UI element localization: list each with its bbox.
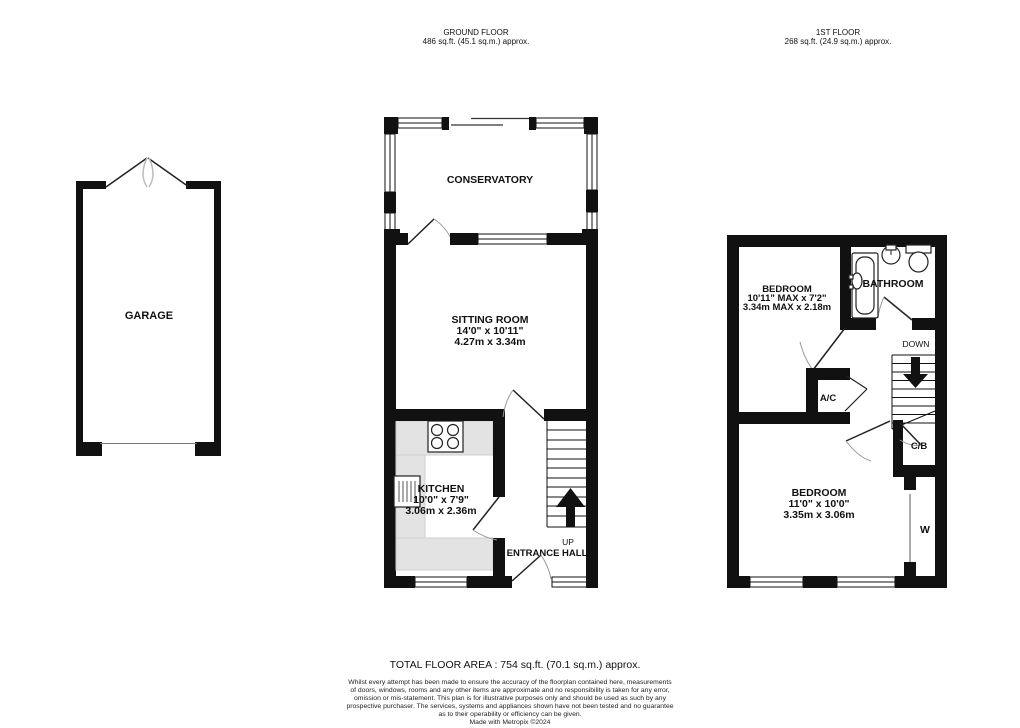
bedroom2-door (846, 421, 890, 441)
garage-label: GARAGE (125, 310, 173, 322)
ac-door (847, 376, 867, 389)
ground-floor-area: 486 sq.ft. (45.1 sq.m.) approx. (423, 37, 530, 46)
conservatory-door-arc (434, 219, 452, 241)
bathroom-door (884, 297, 912, 320)
total-floor-area: TOTAL FLOOR AREA : 754 sq.ft. (70.1 sq.m… (390, 659, 641, 671)
ground-floor-header: GROUND FLOOR 486 sq.ft. (45.1 sq.m.) app… (423, 28, 530, 46)
garage-door-left (106, 158, 147, 187)
floorplan-page: GROUND FLOOR 486 sq.ft. (45.1 sq.m.) app… (0, 0, 1020, 728)
up-label: UP (562, 537, 574, 547)
conservatory-label: CONSERVATORY (447, 174, 533, 186)
conservatory-door (408, 219, 434, 244)
stairs-down (892, 355, 935, 429)
floorplan-drawing: GROUND FLOOR 486 sq.ft. (45.1 sq.m.) app… (0, 0, 1020, 728)
disclaimer-line: of doors, windows, rooms and any other i… (350, 687, 669, 694)
garage-door-arc-right (149, 158, 153, 187)
garage-plan: GARAGE (76, 158, 221, 456)
ac-door-swing (845, 389, 867, 411)
ground-floor-title: GROUND FLOOR (443, 28, 509, 37)
first-floor-title: 1ST FLOOR (816, 28, 861, 37)
ac-label: A/C (820, 393, 837, 404)
garage-door-arc-left (143, 158, 147, 187)
cb-label: C/B (911, 441, 928, 452)
first-floor-plan: BATHROOM BEDROOM 10'11" MAX x 7'2" 3.34m… (727, 235, 947, 588)
kitchen-door (473, 497, 499, 530)
disclaimer-line: prospective purchaser. The services, sys… (346, 703, 673, 710)
bedroom2-door-arc (846, 441, 871, 461)
sink-icon (882, 245, 900, 264)
sitting-room-door (513, 390, 544, 419)
sitting-room-dims-metric: 4.27m x 3.34m (454, 336, 525, 348)
bedroom1-door (813, 328, 845, 370)
hob-icon (428, 421, 463, 452)
first-floor-area: 268 sq.ft. (24.9 sq.m.) approx. (785, 37, 892, 46)
entrance-hall-label: ENTRANCE HALL (507, 548, 588, 559)
kitchen-dims-metric: 3.06m x 2.36m (405, 505, 476, 517)
bedroom1-dims-metric: 3.34m MAX x 2.18m (743, 302, 831, 313)
bedroom2-dims-metric: 3.35m x 3.06m (783, 509, 854, 521)
wardrobe-label: W (920, 524, 930, 536)
bedroom1-door-arc (800, 342, 813, 370)
footer: TOTAL FLOOR AREA : 754 sq.ft. (70.1 sq.m… (346, 659, 673, 726)
disclaimer-line: as to their operability or efficiency ca… (438, 711, 581, 718)
up-arrow-icon (556, 488, 585, 527)
first-floor-header: 1ST FLOOR 268 sq.ft. (24.9 sq.m.) approx… (785, 28, 892, 46)
bathroom-label: BATHROOM (862, 278, 923, 290)
down-label: DOWN (903, 339, 930, 349)
toilet-icon (906, 245, 931, 272)
credit-line: Made with Metropix ©2024 (470, 718, 551, 726)
bathroom-door-arc (878, 297, 884, 318)
conservatory-plan: CONSERVATORY (384, 117, 598, 245)
kitchen-counter-bottom (396, 538, 493, 570)
garage-door-right (148, 158, 189, 187)
disclaimer-line: Whilst every attempt has been made to en… (348, 679, 672, 686)
disclaimer-line: omission or mis-statement. This plan is … (354, 695, 667, 702)
